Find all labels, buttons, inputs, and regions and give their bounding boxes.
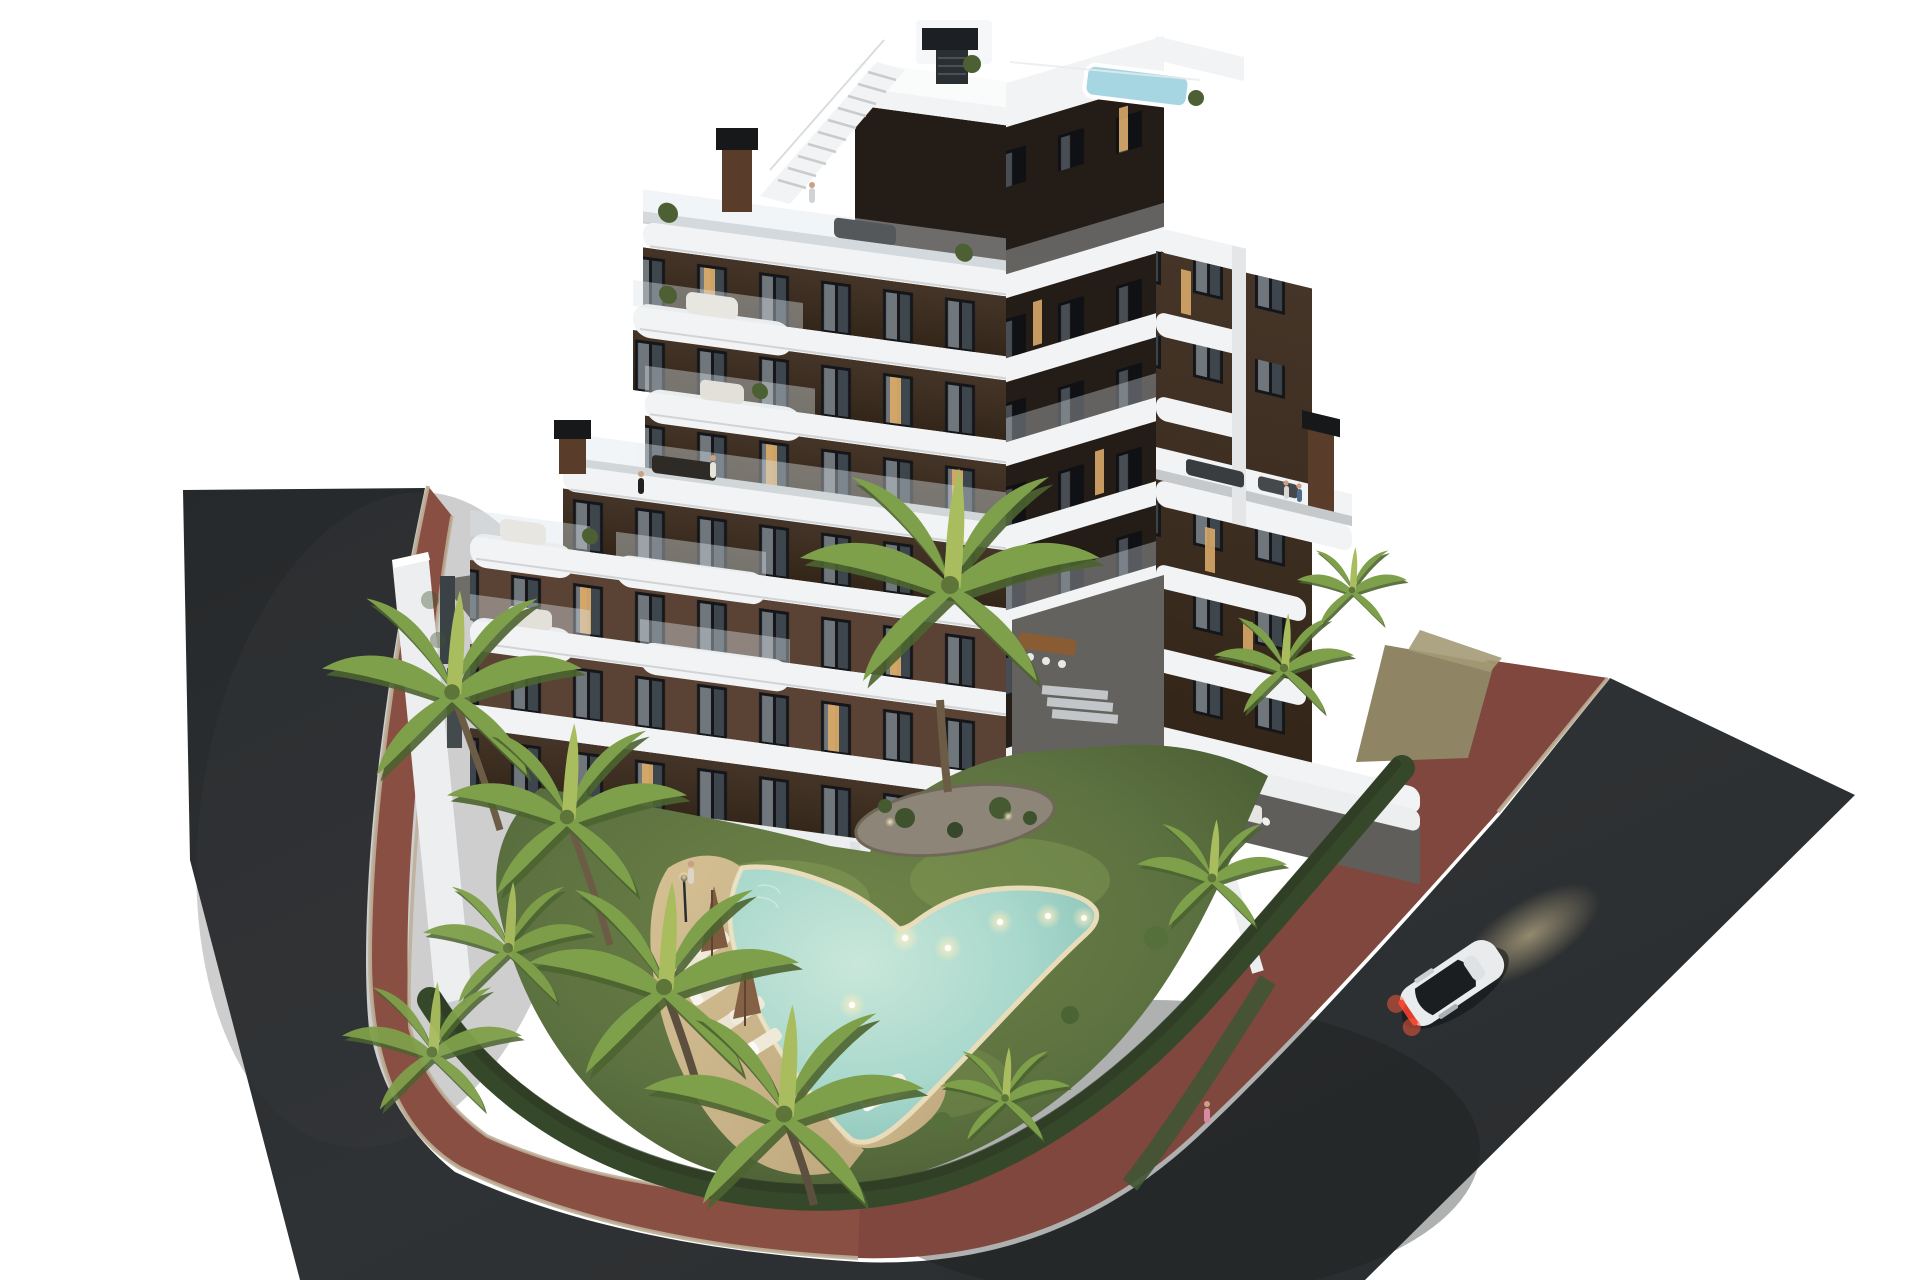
steps — [1042, 685, 1119, 724]
shrub — [1061, 1006, 1079, 1024]
roof-plant — [963, 55, 981, 73]
roof-plant — [1188, 90, 1204, 106]
aerial-render: Aerial 3D architectural rendering of a m… — [0, 0, 1920, 1280]
shrub — [1144, 926, 1168, 950]
shrub — [932, 1112, 952, 1132]
render-canvas: Aerial 3D architectural rendering of a m… — [0, 0, 1920, 1280]
shrub — [421, 591, 439, 609]
penthouse-opening — [922, 28, 978, 50]
